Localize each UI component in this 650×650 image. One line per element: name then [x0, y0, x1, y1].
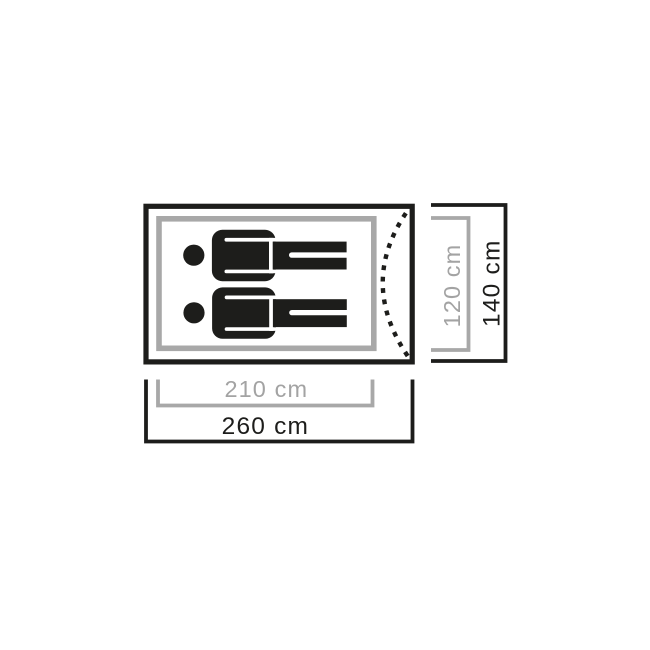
svg-text:140 cm: 140 cm — [479, 239, 506, 327]
svg-text:210 cm: 210 cm — [224, 376, 308, 402]
svg-text:260 cm: 260 cm — [222, 413, 310, 440]
svg-text:120 cm: 120 cm — [439, 244, 465, 328]
